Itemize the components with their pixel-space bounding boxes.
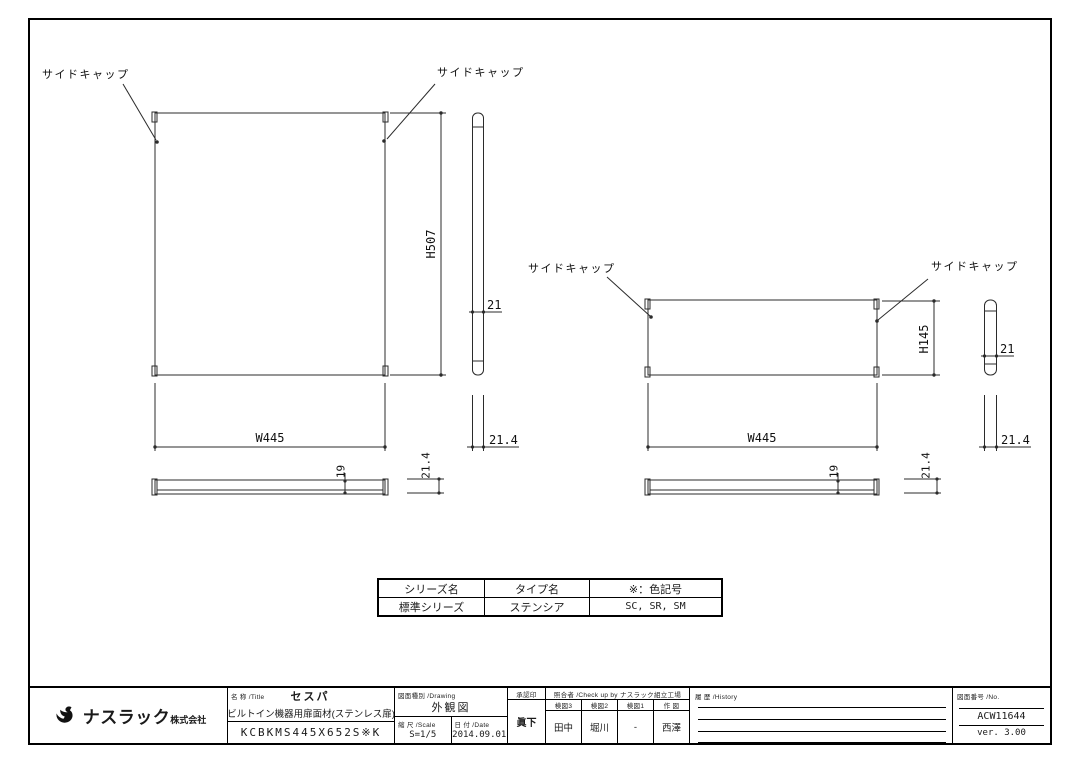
small-panel-views xyxy=(607,277,1031,495)
date-label: 日 付 /Date xyxy=(455,719,490,729)
spec-value-type: ステンシア xyxy=(484,598,590,615)
approval-cell: 承認印 眞下 xyxy=(507,688,545,743)
product-name: セスパ xyxy=(290,688,329,704)
side-cap-callout: サイドキャップ xyxy=(437,64,525,80)
draw-column: 作 図 西澤 xyxy=(653,700,689,743)
check-column-3: 検図3 田中 xyxy=(546,700,581,743)
title-label: 名 称 /Title xyxy=(231,691,264,701)
dim-width-small: W445 xyxy=(732,431,792,445)
number-rule-line xyxy=(959,725,1044,726)
dim-thickness-small: 21 xyxy=(1000,342,1014,356)
dim-inner-small: 19 xyxy=(828,461,841,483)
check3-name: 田中 xyxy=(546,711,581,743)
check1-label: 検図1 xyxy=(627,700,645,710)
drawing-type: 外観図 xyxy=(395,699,507,715)
history-rule-line xyxy=(698,731,946,732)
history-cell: 履 歴 /History xyxy=(689,688,952,743)
dim-edge-large: 21.4 xyxy=(489,433,518,447)
side-cap-callout: サイドキャップ xyxy=(528,260,616,276)
check-column-2: 検図2 堀川 xyxy=(581,700,617,743)
dim-edge-vertical-small: 21.4 xyxy=(920,449,933,483)
drafter-name: 西澤 xyxy=(654,711,689,743)
spec-table: シリーズ名 タイプ名 ※：色記号 標準シリーズ ステンシア SC, SR, SM xyxy=(377,578,723,617)
large-panel-views xyxy=(123,84,519,495)
history-label: 履 歴 /History xyxy=(695,691,737,701)
number-rule-line xyxy=(959,708,1044,709)
dim-edge-vertical-large: 21.4 xyxy=(420,449,433,483)
drawing-number-cell: 図面番号 /No. ACW11644 ver. 3.00 xyxy=(952,688,1050,743)
date-cell: 日 付 /Date 2014.09.01 xyxy=(451,717,508,743)
side-cap-callout: サイドキャップ xyxy=(42,66,130,82)
product-description: ビルトイン機器用扉面材(ステンレス扉) xyxy=(228,704,394,722)
drawing-type-cell: 図面種別 /Drawing 外観図 縮 尺 /Scale S=1/5 日 付 /… xyxy=(394,688,507,743)
scale-cell: 縮 尺 /Scale S=1/5 xyxy=(395,717,451,743)
spec-value-series: 標準シリーズ xyxy=(379,598,484,615)
approver-name: 眞下 xyxy=(508,700,545,743)
drawing-number: ACW11644 xyxy=(953,711,1050,722)
spec-header-series: シリーズ名 xyxy=(379,580,484,597)
dim-height-small: H145 xyxy=(917,317,931,361)
check2-name: 堀川 xyxy=(582,711,617,743)
company-name-suffix: 株式会社 xyxy=(170,713,206,726)
spec-value-color-code: SC, SR, SM xyxy=(590,598,721,615)
check1-name: - xyxy=(618,711,653,743)
spec-table-header-row: シリーズ名 タイプ名 ※：色記号 xyxy=(379,580,721,598)
history-rule-line xyxy=(698,719,946,720)
check-column-1: 検図1 - xyxy=(617,700,653,743)
drafter-label: 作 図 xyxy=(664,700,680,710)
checkup-cell: 照合者 /Check up by ナスラック組立工場 検図3 田中 検図2 堀川… xyxy=(545,688,689,743)
dim-inner-large: 19 xyxy=(335,461,348,483)
scale-value: S=1/5 xyxy=(395,730,451,740)
side-cap-callout: サイドキャップ xyxy=(931,258,1019,274)
history-rule-line xyxy=(698,707,946,708)
history-rule-line xyxy=(698,742,946,743)
date-value: 2014.09.01 xyxy=(452,730,508,740)
company-name: ナスラック 株式会社 xyxy=(83,703,207,728)
spec-header-color-code: ※：色記号 xyxy=(590,580,721,597)
spec-table-value-row: 標準シリーズ ステンシア SC, SR, SM xyxy=(379,598,721,615)
dim-height-large: H507 xyxy=(424,222,438,266)
check2-label: 検図2 xyxy=(591,700,609,710)
large-panel-dimension-dots xyxy=(153,111,485,494)
technical-drawing xyxy=(0,0,1080,763)
company-name-main: ナスラック xyxy=(83,703,171,728)
scale-label: 縮 尺 /Scale xyxy=(398,719,436,729)
checkup-label: 照合者 /Check up by ナスラック組立工場 xyxy=(554,689,681,699)
drawing-number-label: 図面番号 /No. xyxy=(957,691,999,701)
drawing-version: ver. 3.00 xyxy=(953,728,1050,738)
model-number: KCBKMS445X652S※K xyxy=(228,722,394,743)
product-name-cell: 名 称 /Title セスパ ビルトイン機器用扉面材(ステンレス扉) KCBKM… xyxy=(227,688,394,743)
small-panel-dimension-dots xyxy=(646,299,998,494)
spec-header-type: タイプ名 xyxy=(484,580,590,597)
check3-label: 検図3 xyxy=(555,700,573,710)
title-block: ナスラック 株式会社 名 称 /Title セスパ ビルトイン機器用扉面材(ステ… xyxy=(28,686,1052,745)
dim-width-large: W445 xyxy=(240,431,300,445)
dim-edge-small: 21.4 xyxy=(1001,433,1030,447)
approval-label: 承認印 xyxy=(516,689,536,699)
company-logo-cell: ナスラック 株式会社 xyxy=(30,688,227,743)
dim-thickness-large: 21 xyxy=(487,298,501,312)
drawing-sheet: サイドキャップ サイドキャップ サイドキャップ サイドキャップ H507 W44… xyxy=(0,0,1080,763)
swan-logo-icon xyxy=(51,705,77,727)
